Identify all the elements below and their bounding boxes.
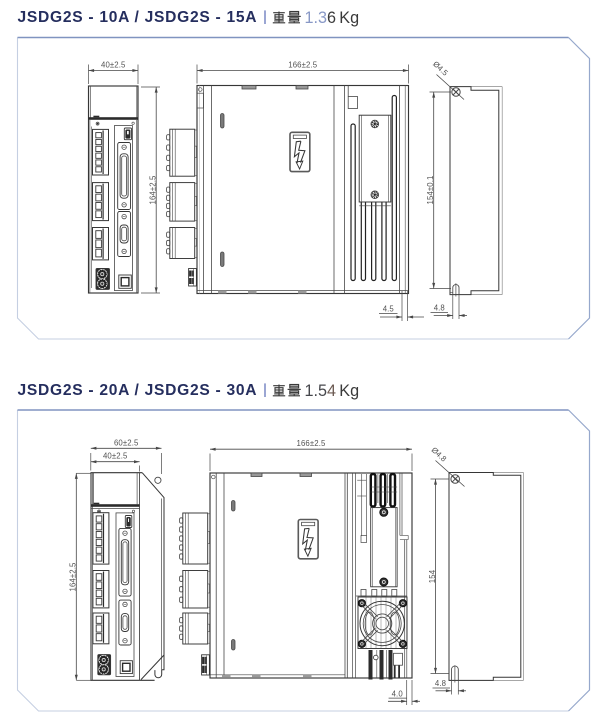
svg-text:164±2.5: 164±2.5: [69, 562, 78, 592]
svg-text:4.5: 4.5: [383, 305, 395, 314]
svg-text:4.0: 4.0: [392, 689, 404, 698]
svg-text:60±2.5: 60±2.5: [114, 438, 139, 447]
svg-text:4.8: 4.8: [434, 304, 445, 313]
svg-text:154: 154: [428, 569, 437, 583]
svg-text:1.36 Kg: 1.36 Kg: [305, 9, 360, 27]
svg-text:166±2.5: 166±2.5: [288, 60, 318, 69]
svg-text:166±2.5: 166±2.5: [297, 439, 327, 448]
svg-text:JSDG2S - 20A / JSDG2S - 30A: JSDG2S - 20A / JSDG2S - 30A: [18, 382, 257, 399]
svg-text:4.8: 4.8: [435, 679, 446, 688]
svg-text:40±2.5: 40±2.5: [103, 452, 128, 461]
svg-text:154±0.1: 154±0.1: [426, 176, 435, 205]
svg-text:1.54 Kg: 1.54 Kg: [305, 382, 360, 400]
svg-text:JSDG2S - 10A / JSDG2S - 15A: JSDG2S - 10A / JSDG2S - 15A: [18, 9, 257, 26]
svg-text:40±2.5: 40±2.5: [101, 60, 126, 69]
svg-text:164±2.5: 164±2.5: [148, 175, 157, 205]
